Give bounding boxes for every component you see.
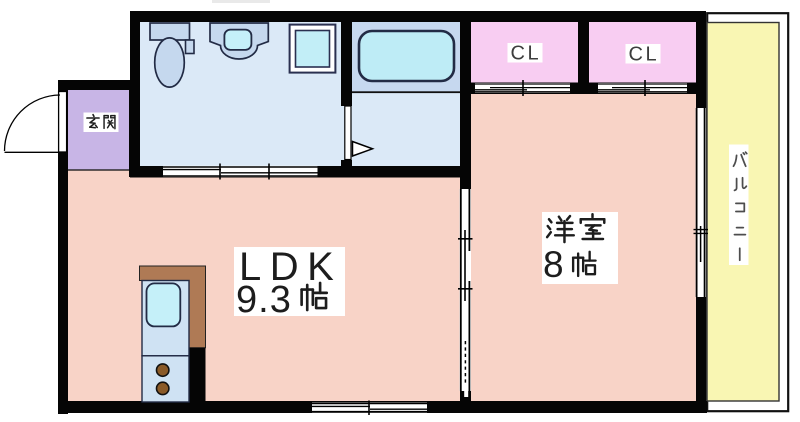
svg-text:CL: CL	[629, 44, 660, 66]
svg-text:8: 8	[543, 244, 564, 285]
svg-text:9.3: 9.3	[236, 279, 292, 321]
svg-text:CL: CL	[511, 43, 542, 65]
